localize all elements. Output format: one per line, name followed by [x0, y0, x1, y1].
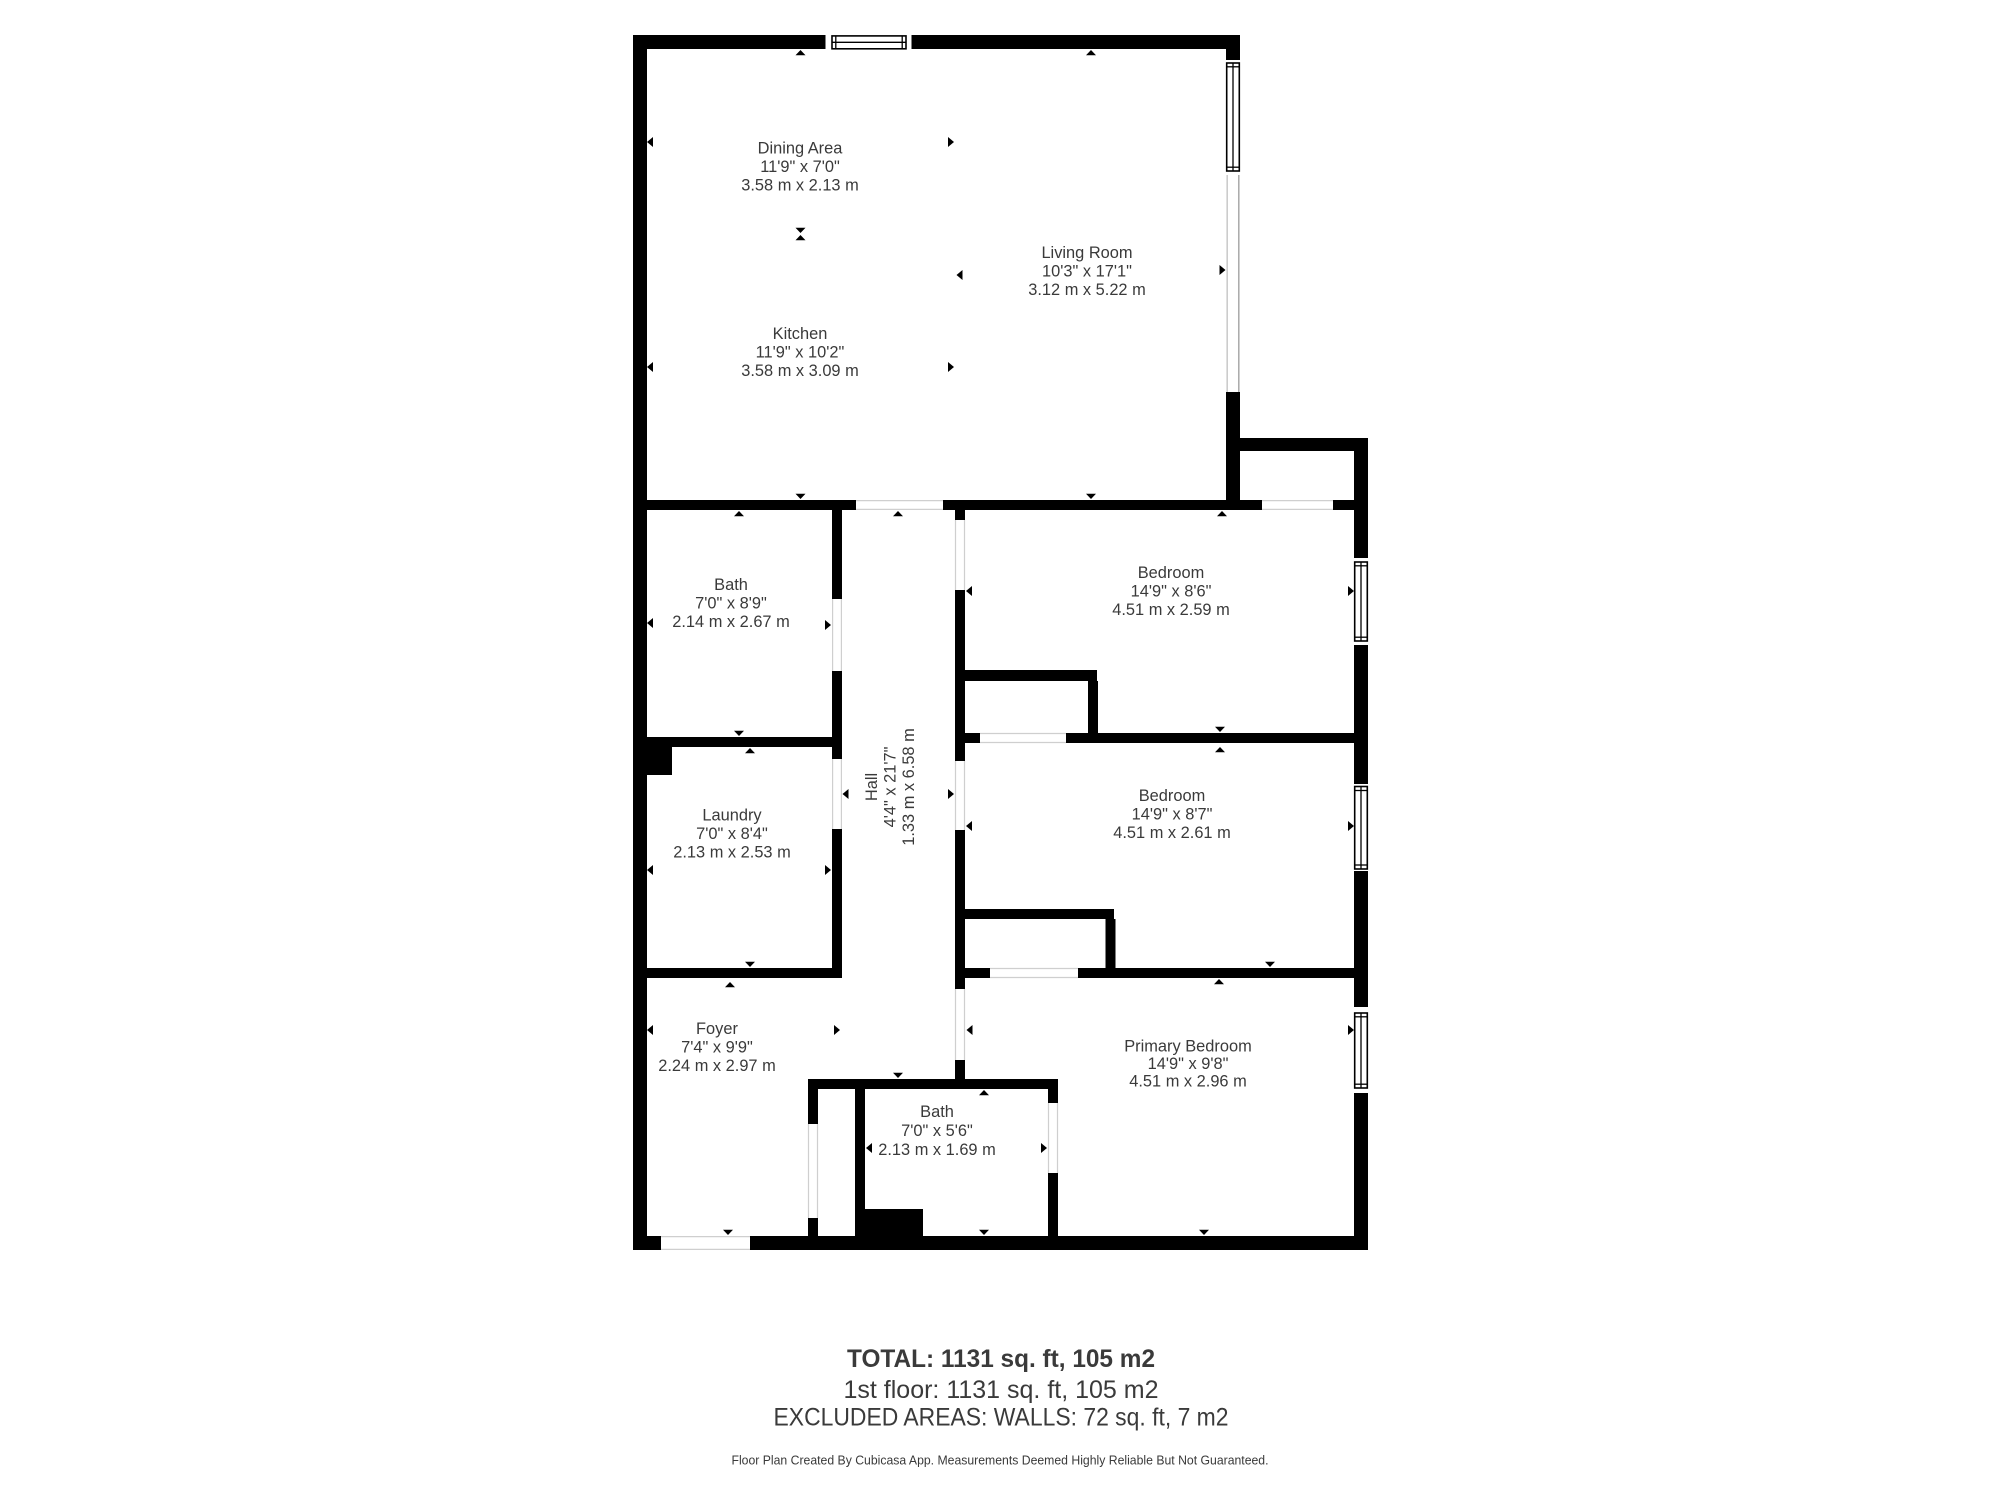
svg-text:Foyer: Foyer — [696, 1020, 738, 1038]
svg-text:4.51 m x 2.61 m: 4.51 m x 2.61 m — [1113, 824, 1231, 842]
svg-text:1st floor: 1131 sq. ft, 105 m2: 1st floor: 1131 sq. ft, 105 m2 — [844, 1376, 1159, 1404]
svg-text:Bath: Bath — [714, 576, 748, 594]
svg-text:EXCLUDED AREAS: WALLS: 72 sq.: EXCLUDED AREAS: WALLS: 72 sq. ft, 7 m2 — [774, 1404, 1229, 1432]
svg-text:Bedroom: Bedroom — [1138, 564, 1205, 582]
svg-text:Living Room: Living Room — [1041, 244, 1132, 262]
svg-text:7'0" x 8'4": 7'0" x 8'4" — [696, 825, 768, 843]
svg-text:3.58 m x 2.13 m: 3.58 m x 2.13 m — [741, 177, 859, 195]
svg-text:3.58 m x 3.09 m: 3.58 m x 3.09 m — [741, 362, 859, 380]
svg-text:1.33 m x 6.58 m: 1.33 m x 6.58 m — [900, 728, 918, 846]
svg-text:Bedroom: Bedroom — [1139, 787, 1206, 805]
svg-text:Hall: Hall — [863, 773, 881, 801]
svg-text:2.13 m x 1.69 m: 2.13 m x 1.69 m — [878, 1141, 996, 1159]
svg-text:4.51 m x 2.59 m: 4.51 m x 2.59 m — [1112, 601, 1230, 619]
svg-text:Kitchen: Kitchen — [773, 325, 828, 343]
svg-text:2.13 m x 2.53 m: 2.13 m x 2.53 m — [673, 844, 791, 862]
svg-text:Primary Bedroom: Primary Bedroom — [1124, 1038, 1252, 1056]
svg-text:4.51 m x 2.96 m: 4.51 m x 2.96 m — [1129, 1073, 1247, 1091]
svg-text:7'0" x 5'6": 7'0" x 5'6" — [901, 1122, 973, 1140]
svg-text:14'9" x 8'6": 14'9" x 8'6" — [1131, 583, 1212, 601]
svg-text:11'9" x 7'0": 11'9" x 7'0" — [760, 158, 840, 176]
svg-text:11'9" x 10'2": 11'9" x 10'2" — [756, 344, 845, 362]
svg-text:10'3" x 17'1": 10'3" x 17'1" — [1042, 263, 1132, 281]
svg-text:TOTAL: 1131 sq. ft, 105 m2: TOTAL: 1131 sq. ft, 105 m2 — [847, 1345, 1155, 1373]
svg-text:2.14 m x 2.67 m: 2.14 m x 2.67 m — [672, 613, 790, 631]
svg-text:3.12 m x 5.22 m: 3.12 m x 5.22 m — [1028, 281, 1146, 299]
svg-text:14'9" x 8'7": 14'9" x 8'7" — [1132, 806, 1213, 824]
svg-text:7'4" x 9'9": 7'4" x 9'9" — [681, 1039, 753, 1057]
svg-text:2.24 m x 2.97 m: 2.24 m x 2.97 m — [658, 1057, 776, 1075]
svg-text:Bath: Bath — [920, 1103, 954, 1121]
svg-text:Laundry: Laundry — [702, 807, 762, 825]
svg-text:Floor Plan Created By Cubicasa: Floor Plan Created By Cubicasa App. Meas… — [732, 1453, 1269, 1468]
svg-text:Dining Area: Dining Area — [758, 140, 844, 158]
svg-text:14'9" x 9'8": 14'9" x 9'8" — [1148, 1055, 1229, 1073]
svg-text:7'0" x 8'9": 7'0" x 8'9" — [695, 595, 767, 613]
svg-text:4'4" x 21'7": 4'4" x 21'7" — [882, 746, 900, 827]
